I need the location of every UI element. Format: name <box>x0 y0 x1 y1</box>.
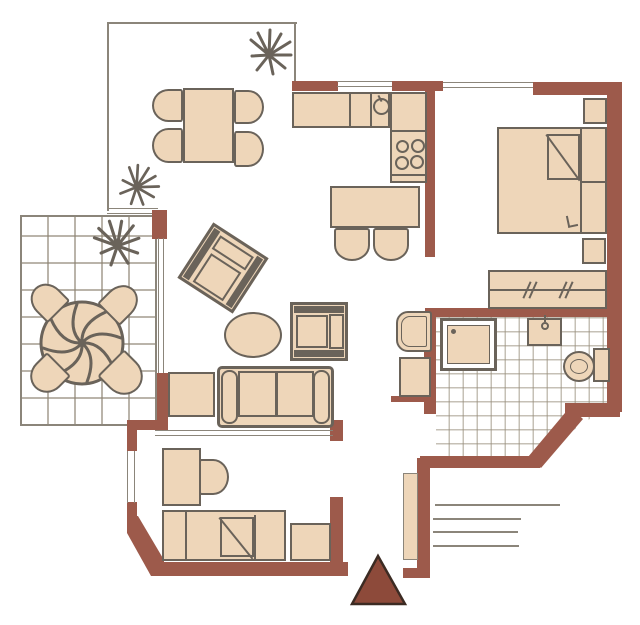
oval-coffee-table <box>224 312 282 358</box>
armchair-seat <box>296 315 328 348</box>
window-kitchen-1 <box>337 81 392 87</box>
entrance-arrow-icon <box>352 556 405 604</box>
washbasin <box>527 318 562 346</box>
sofa-armrest-left <box>221 370 238 424</box>
window-bedroom2-west <box>127 451 135 503</box>
counter-divider <box>392 174 425 176</box>
sofa-cushion <box>238 371 277 417</box>
entrance-arrow <box>348 552 410 610</box>
entrance-step <box>433 531 518 533</box>
wall-corner-diagonal <box>127 516 164 576</box>
plant-icon <box>88 218 146 270</box>
floor-plan <box>0 0 640 625</box>
kitchen-counter-vertical <box>390 92 427 183</box>
bed-corner-fold <box>566 214 578 228</box>
entrance-step <box>433 518 521 520</box>
kitchen-chair-2 <box>373 228 409 261</box>
armchair-back <box>329 314 344 349</box>
entrance-step <box>433 545 519 547</box>
armchair-right <box>290 302 348 361</box>
dining-chair-1 <box>152 89 183 122</box>
nightstand-2 <box>582 238 606 264</box>
stove-burner-icon <box>395 156 409 170</box>
shower <box>440 318 497 371</box>
plant-icon <box>112 163 162 208</box>
counter-divider <box>349 94 351 126</box>
bedroom2-side-table <box>290 523 331 561</box>
nightstand-1 <box>583 98 607 124</box>
toilet-cistern <box>593 348 610 382</box>
counter-divider <box>392 130 425 132</box>
kitchen-table <box>330 186 420 228</box>
entrance-step <box>435 504 560 506</box>
wall-bathroom-diagonal <box>528 407 583 468</box>
wardrobe <box>488 270 607 309</box>
counter-divider <box>370 94 372 126</box>
stove-burner-icon <box>411 139 425 153</box>
basin-faucet-icon <box>541 322 549 330</box>
armchair-armrest <box>294 306 344 313</box>
side-table <box>168 372 215 417</box>
armchair-armrest <box>294 350 344 357</box>
sofa-cushion <box>276 371 314 417</box>
bed-divider <box>254 515 256 559</box>
stove-burner-icon <box>396 140 409 153</box>
plant-icon <box>243 28 295 78</box>
stove-burner-icon <box>410 155 424 169</box>
kitchen-chair-1 <box>334 228 370 261</box>
hall-basin-inner <box>401 316 427 347</box>
hall-basin-fixture <box>396 311 432 352</box>
basin-faucet-stem <box>544 315 546 322</box>
window-living-west <box>158 238 164 373</box>
shower-drain-icon <box>451 329 456 334</box>
partition-bedroom2-top <box>155 430 333 436</box>
desk <box>162 448 201 506</box>
sofa-armrest-right <box>313 370 330 424</box>
wardrobe-divider <box>490 289 605 291</box>
sofa <box>217 366 334 428</box>
window-kitchen-2 <box>443 82 533 88</box>
toilet-bowl <box>563 351 595 382</box>
bed-pillow-divider <box>185 512 187 559</box>
entry-door-leaf <box>403 473 418 560</box>
double-bed <box>497 127 607 234</box>
single-bed <box>162 510 286 561</box>
bed-pillow-split <box>580 181 605 183</box>
toilet-bowl-inner <box>570 359 588 374</box>
kitchen-counter-horizontal <box>292 92 390 128</box>
hall-cabinet <box>399 357 431 397</box>
dining-chair-2 <box>152 128 183 163</box>
dining-table <box>183 88 234 163</box>
